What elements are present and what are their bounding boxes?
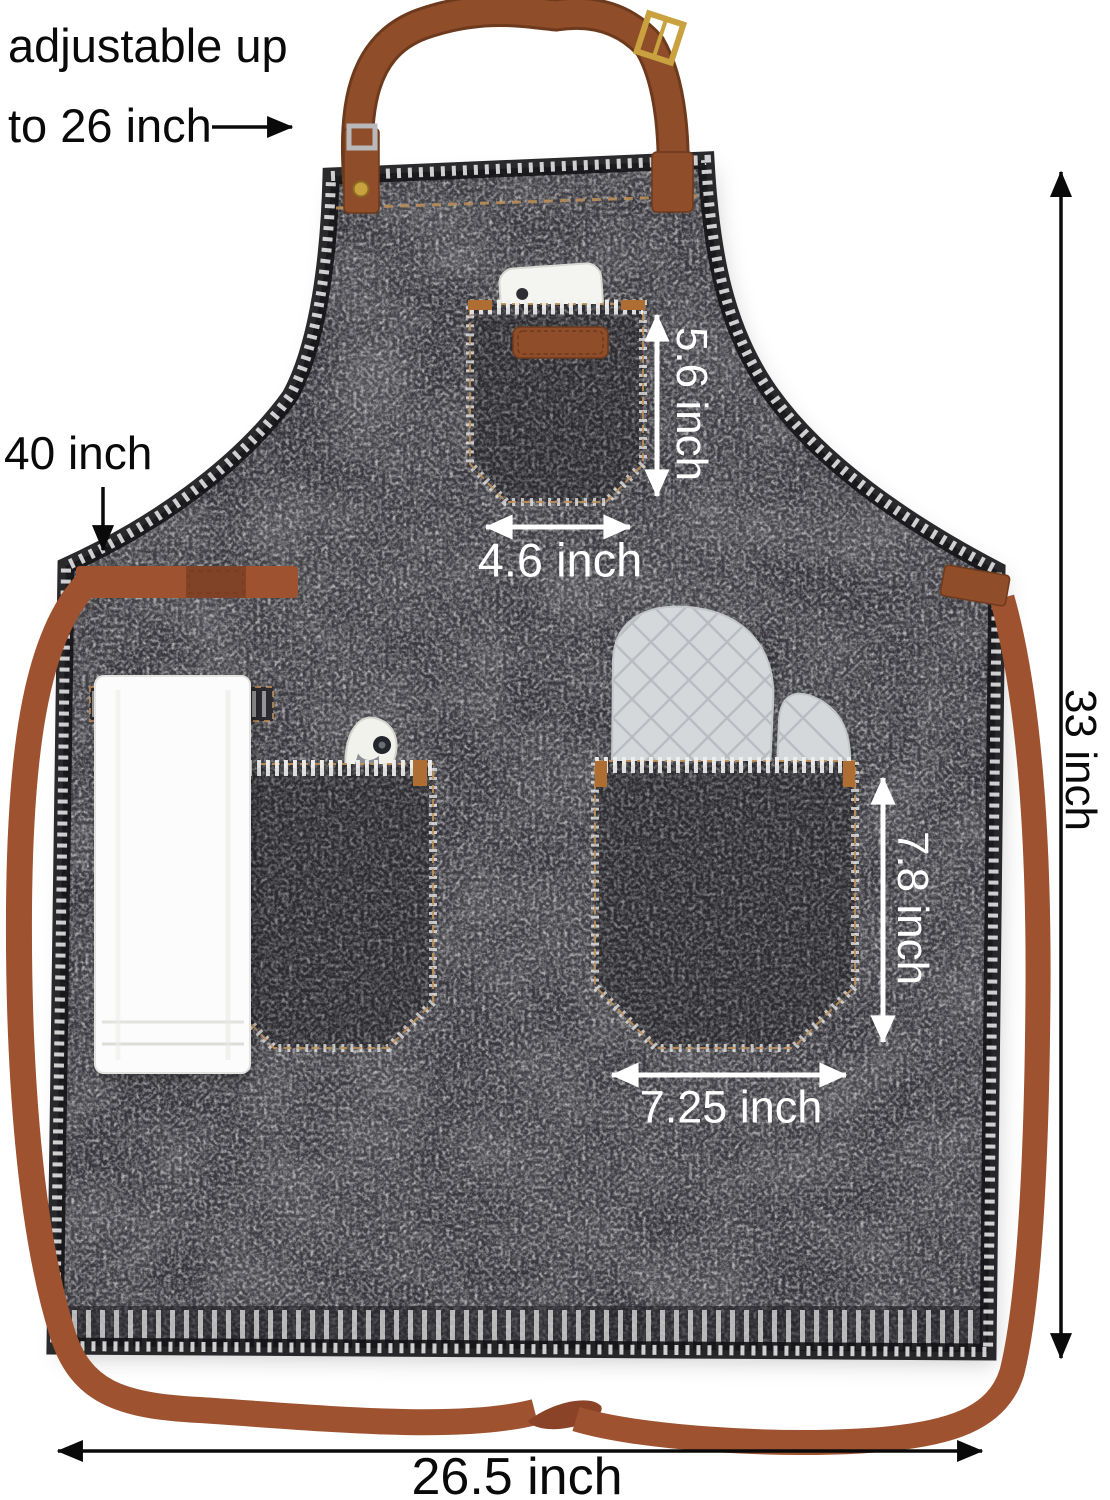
front-pocket-width-label: 7.25 inch: [640, 1085, 823, 1130]
chest-pocket-height-label: 5.6 inch: [669, 327, 713, 481]
left-pocket: [220, 755, 445, 1060]
left-pocket-bartack: [413, 760, 427, 786]
chest-pocket-bartack-left: [468, 300, 492, 310]
neck-strap-note-line2: to 26 inch: [8, 102, 212, 149]
neck-strap-note-line1: adjustable up: [8, 22, 288, 69]
waist-strap-length-label: 40 inch: [4, 430, 152, 476]
apron-illustration: [0, 0, 1110, 1500]
neck-strap-left-tab: [344, 126, 379, 213]
leather-label: [513, 327, 608, 358]
towel: [95, 676, 250, 1073]
right-pocket: [585, 750, 865, 1060]
front-pocket-height-label: 7.8 inch: [890, 831, 934, 985]
chest-pocket-width-label: 4.6 inch: [478, 537, 643, 584]
right-pocket-bartack-right: [843, 761, 855, 787]
apron-height-label: 33 inch: [1058, 689, 1102, 831]
apron-product-photo: adjustable up to 26 inch 40 inch 33 inch…: [0, 0, 1110, 1500]
apron-width-label: 26.5 inch: [411, 1451, 622, 1500]
neck-strap-right-tab: [652, 152, 693, 212]
rivet: [354, 182, 369, 197]
right-pocket-bartack-left: [595, 761, 607, 787]
chest-pocket-bartack-right: [621, 300, 645, 310]
chest-pocket: [460, 295, 655, 510]
left-strap-tab: [76, 566, 298, 598]
